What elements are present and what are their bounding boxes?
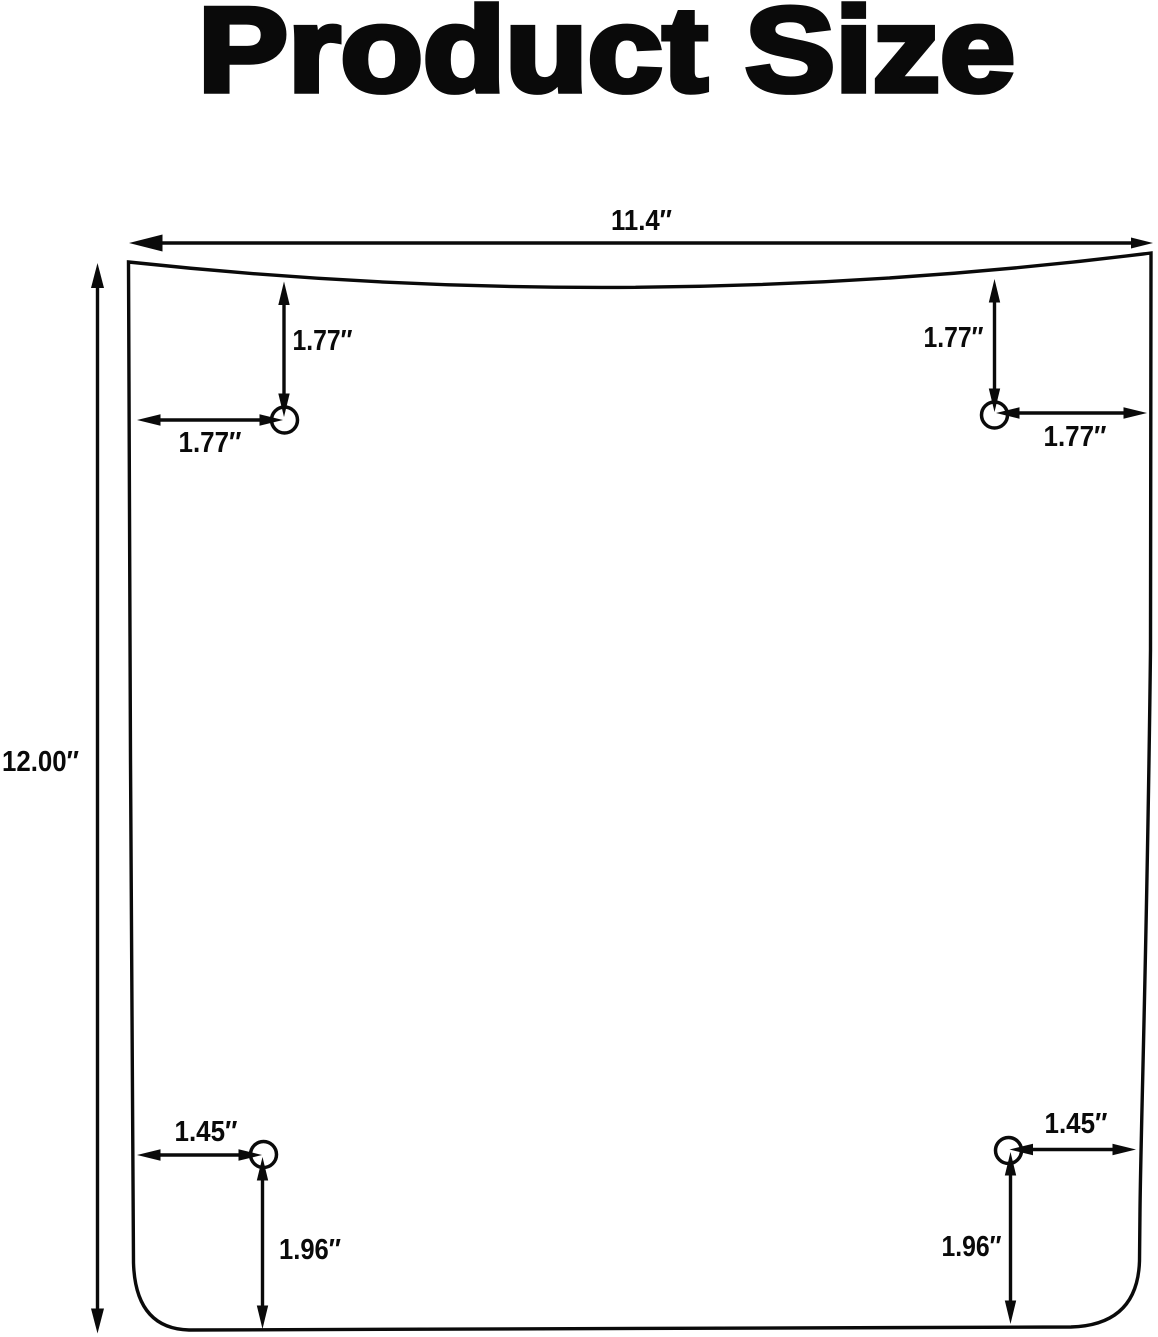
svg-text:1.96″: 1.96″	[279, 1234, 341, 1266]
svg-text:1.45″: 1.45″	[1045, 1108, 1108, 1140]
svg-text:11.4″: 11.4″	[611, 205, 672, 237]
svg-text:1.77″: 1.77″	[924, 322, 984, 354]
svg-text:1.77″: 1.77″	[1044, 421, 1107, 453]
svg-text:1.45″: 1.45″	[175, 1116, 238, 1148]
svg-text:Product Size: Product Size	[198, 0, 1015, 117]
svg-text:1.77″: 1.77″	[179, 427, 242, 459]
svg-text:1.77″: 1.77″	[293, 325, 353, 357]
svg-text:1.96″: 1.96″	[942, 1231, 1002, 1263]
svg-text:12.00″: 12.00″	[2, 746, 79, 778]
